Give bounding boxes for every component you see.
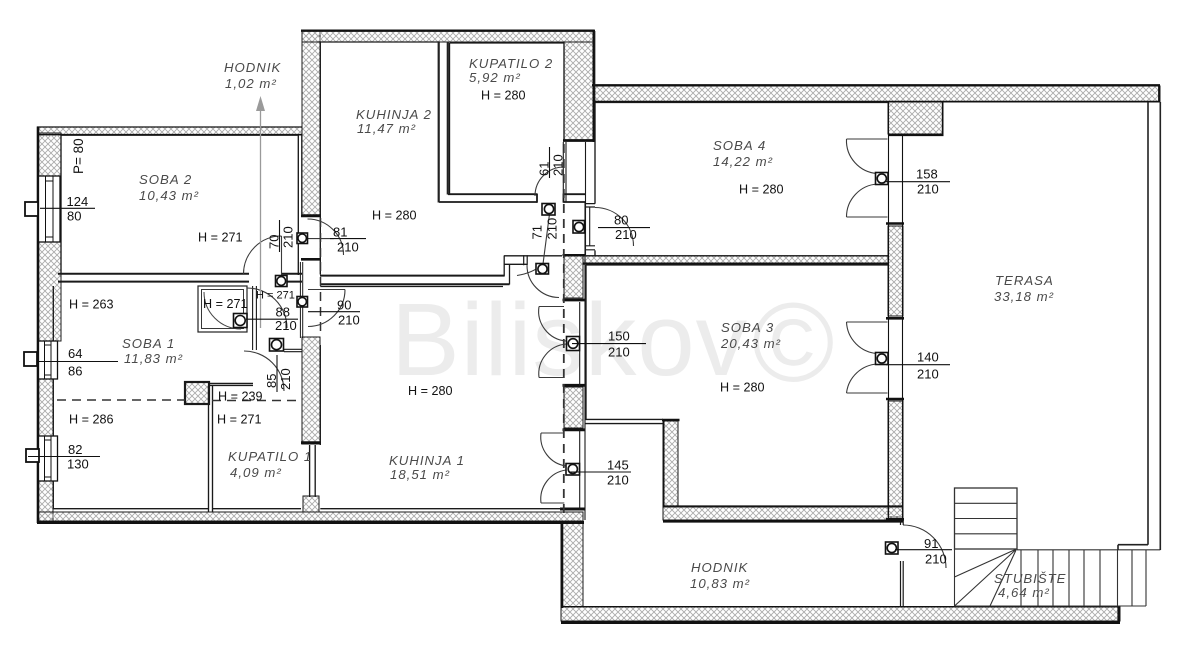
svg-text:210: 210	[551, 154, 566, 176]
svg-text:150: 150	[608, 329, 630, 344]
svg-text:33,18 m²: 33,18 m²	[994, 289, 1054, 304]
svg-text:H = 280: H = 280	[739, 183, 783, 197]
svg-text:5,92 m²: 5,92 m²	[469, 70, 521, 85]
svg-text:210: 210	[337, 240, 359, 255]
svg-text:H = 271: H = 271	[256, 290, 295, 302]
svg-text:STUBIŠTE: STUBIŠTE	[994, 571, 1066, 586]
svg-text:90: 90	[337, 298, 351, 313]
svg-text:210: 210	[607, 473, 629, 488]
svg-text:210: 210	[615, 227, 637, 242]
svg-text:H = 280: H = 280	[372, 209, 416, 223]
svg-text:H = 280: H = 280	[481, 89, 525, 103]
svg-text:4,64 m²: 4,64 m²	[998, 585, 1050, 600]
svg-text:1,02 m²: 1,02 m²	[225, 76, 277, 91]
svg-text:H = 280: H = 280	[720, 381, 764, 395]
svg-text:210: 210	[338, 313, 360, 328]
svg-text:82: 82	[68, 442, 82, 457]
svg-text:HODNIK: HODNIK	[224, 60, 281, 75]
svg-text:SOBA 2: SOBA 2	[139, 172, 192, 187]
svg-text:210: 210	[545, 218, 560, 240]
svg-text:71: 71	[530, 225, 545, 239]
svg-text:10,43 m²: 10,43 m²	[139, 188, 199, 203]
svg-text:KUPATILO 1: KUPATILO 1	[228, 449, 312, 464]
svg-text:10,83 m²: 10,83 m²	[690, 576, 750, 591]
svg-text:210: 210	[275, 318, 297, 333]
svg-text:KUHINJA 2: KUHINJA 2	[356, 107, 432, 122]
svg-text:4,09 m²: 4,09 m²	[230, 465, 282, 480]
svg-text:145: 145	[607, 458, 629, 473]
svg-text:158: 158	[916, 167, 938, 182]
svg-text:KUPATILO 2: KUPATILO 2	[469, 56, 553, 71]
svg-text:80: 80	[67, 209, 81, 224]
svg-text:64: 64	[68, 346, 82, 361]
svg-text:81: 81	[333, 225, 347, 240]
svg-text:210: 210	[925, 552, 947, 567]
svg-text:H = 239: H = 239	[218, 390, 262, 404]
svg-text:130: 130	[67, 457, 89, 472]
svg-text:210: 210	[608, 345, 630, 360]
svg-text:H = 271: H = 271	[203, 297, 247, 311]
svg-text:210: 210	[281, 226, 296, 248]
svg-text:80: 80	[614, 213, 628, 228]
svg-text:H = 271: H = 271	[198, 231, 242, 245]
svg-text:140: 140	[917, 350, 939, 365]
svg-text:18,51 m²: 18,51 m²	[390, 467, 450, 482]
svg-text:11,83 m²: 11,83 m²	[124, 351, 183, 366]
svg-text:91: 91	[924, 536, 938, 551]
svg-text:P= 80: P= 80	[71, 138, 86, 174]
svg-text:H = 286: H = 286	[69, 413, 113, 427]
svg-text:TERASA: TERASA	[995, 273, 1054, 288]
svg-text:210: 210	[917, 367, 939, 382]
svg-text:124: 124	[67, 194, 89, 209]
svg-text:H = 271: H = 271	[217, 413, 261, 427]
svg-text:HODNIK: HODNIK	[691, 560, 748, 575]
svg-text:H = 263: H = 263	[69, 298, 113, 312]
svg-text:210: 210	[917, 182, 939, 197]
svg-text:86: 86	[68, 364, 82, 379]
svg-text:11,47 m²: 11,47 m²	[357, 121, 416, 136]
svg-text:H = 280: H = 280	[408, 384, 452, 398]
svg-text:SOBA 1: SOBA 1	[122, 336, 175, 351]
svg-text:SOBA 3: SOBA 3	[721, 320, 774, 335]
svg-text:210: 210	[278, 368, 293, 390]
svg-text:SOBA 4: SOBA 4	[713, 138, 766, 153]
svg-text:20,43 m²: 20,43 m²	[720, 336, 781, 351]
svg-text:KUHINJA 1: KUHINJA 1	[389, 453, 465, 468]
svg-text:14,22 m²: 14,22 m²	[713, 154, 773, 169]
